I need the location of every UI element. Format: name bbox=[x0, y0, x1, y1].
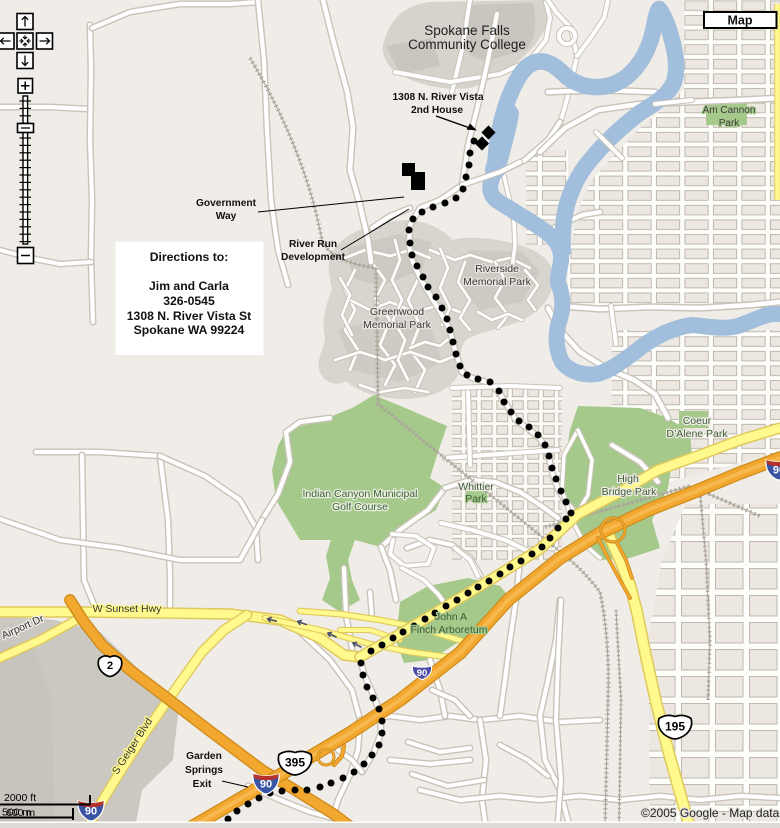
svg-text:©2005 Google - Map data ©2: ©2005 Google - Map data ©2 bbox=[641, 806, 780, 820]
svg-text:Whittier: Whittier bbox=[458, 481, 494, 493]
svg-text:Bridge Park: Bridge Park bbox=[602, 486, 658, 498]
svg-text:Finch Arboretum: Finch Arboretum bbox=[410, 624, 487, 636]
svg-text:High: High bbox=[617, 473, 639, 485]
svg-text:90: 90 bbox=[417, 668, 428, 679]
svg-text:Riverside: Riverside bbox=[475, 263, 519, 275]
svg-text:Memorial Park: Memorial Park bbox=[463, 276, 531, 288]
svg-text:2000 ft: 2000 ft bbox=[4, 792, 36, 804]
svg-text:Spokane WA 99224: Spokane WA 99224 bbox=[134, 323, 245, 337]
svg-text:2nd House: 2nd House bbox=[411, 105, 463, 116]
svg-text:W Sunset Hwy: W Sunset Hwy bbox=[93, 603, 163, 615]
svg-text:Spokane Falls: Spokane Falls bbox=[424, 23, 510, 38]
svg-text:Jim and Carla: Jim and Carla bbox=[149, 279, 229, 293]
svg-text:Community College: Community College bbox=[408, 37, 526, 52]
svg-text:Park: Park bbox=[719, 118, 741, 129]
svg-text:River Run: River Run bbox=[289, 239, 337, 250]
svg-text:Park: Park bbox=[465, 493, 487, 505]
svg-text:326-0545: 326-0545 bbox=[163, 294, 215, 308]
svg-text:Directions to:: Directions to: bbox=[150, 250, 229, 264]
svg-text:1308 N. River Vista: 1308 N. River Vista bbox=[393, 92, 484, 103]
svg-text:John A: John A bbox=[435, 611, 467, 623]
svg-text:90: 90 bbox=[773, 465, 780, 477]
svg-text:Development: Development bbox=[281, 252, 346, 263]
svg-text:Way: Way bbox=[216, 211, 237, 222]
svg-text:2: 2 bbox=[107, 660, 113, 672]
svg-text:600 m: 600 m bbox=[6, 807, 35, 819]
svg-text:Golf Course: Golf Course bbox=[332, 501, 388, 513]
svg-text:Springs: Springs bbox=[185, 765, 223, 776]
svg-text:395: 395 bbox=[285, 755, 305, 769]
svg-text:Indian Canyon Municipal: Indian Canyon Municipal bbox=[303, 488, 418, 500]
svg-text:90: 90 bbox=[85, 806, 97, 818]
svg-text:Exit: Exit bbox=[193, 779, 212, 790]
svg-text:195: 195 bbox=[665, 719, 685, 733]
svg-text:1308 N. River Vista St: 1308 N. River Vista St bbox=[127, 309, 251, 323]
svg-text:Greenwood: Greenwood bbox=[370, 306, 424, 318]
svg-text:Map: Map bbox=[728, 14, 753, 28]
svg-text:D’Alene Park: D’Alene Park bbox=[666, 428, 728, 440]
svg-text:Coeur: Coeur bbox=[683, 415, 712, 427]
svg-text:Am Cannon: Am Cannon bbox=[703, 105, 756, 116]
svg-text:Memorial Park: Memorial Park bbox=[363, 319, 431, 331]
svg-text:Government: Government bbox=[196, 198, 257, 209]
svg-text:Garden: Garden bbox=[186, 751, 222, 762]
svg-text:90: 90 bbox=[260, 779, 272, 791]
